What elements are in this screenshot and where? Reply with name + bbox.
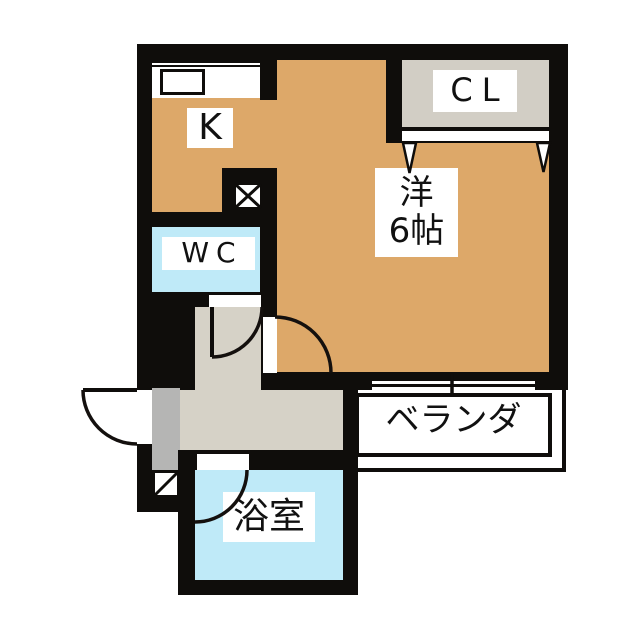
kitchen-room-opening (260, 100, 277, 168)
bathroom-label-text: 浴室 (233, 497, 305, 537)
closet-label: CL (433, 70, 517, 112)
bathroom-doorway (197, 454, 249, 470)
western-room-label: 洋 6帖 (375, 168, 458, 257)
kitchen-floor-lower (152, 168, 222, 212)
counter-edge-line2 (152, 65, 260, 67)
hallway-upper (195, 307, 261, 390)
meter-box-icon (152, 470, 180, 498)
veranda: ベランダ (355, 393, 552, 457)
entrance-door-arc (83, 390, 137, 444)
kitchen-label: K (187, 108, 233, 148)
wc-label: WC (162, 237, 255, 270)
sliding-window-icon (372, 381, 535, 393)
hallway-lower (180, 390, 343, 452)
entry-bottom-wall (137, 498, 182, 512)
closet-label-text: CL (441, 73, 508, 108)
room-doorway (263, 317, 277, 373)
wc-label-text: WC (174, 238, 242, 269)
veranda-label-text: ベランダ (386, 402, 522, 439)
wc-doorway (209, 295, 261, 307)
entry-step (152, 388, 180, 470)
sliding-window-mid-rail (372, 384, 535, 387)
counter-edge-line (152, 60, 260, 63)
bathroom-label: 浴室 (223, 492, 315, 542)
floor-plan: WC ベランダ 浴室 K CL 洋 6帖 (0, 0, 640, 640)
pipe-shaft-icon (233, 182, 263, 210)
western-room-name: 洋 (400, 175, 434, 212)
sink-icon (160, 69, 205, 95)
western-room-size: 6帖 (389, 213, 445, 250)
closet-door-strip (402, 131, 549, 141)
kitchen-label-text: K (198, 108, 222, 148)
